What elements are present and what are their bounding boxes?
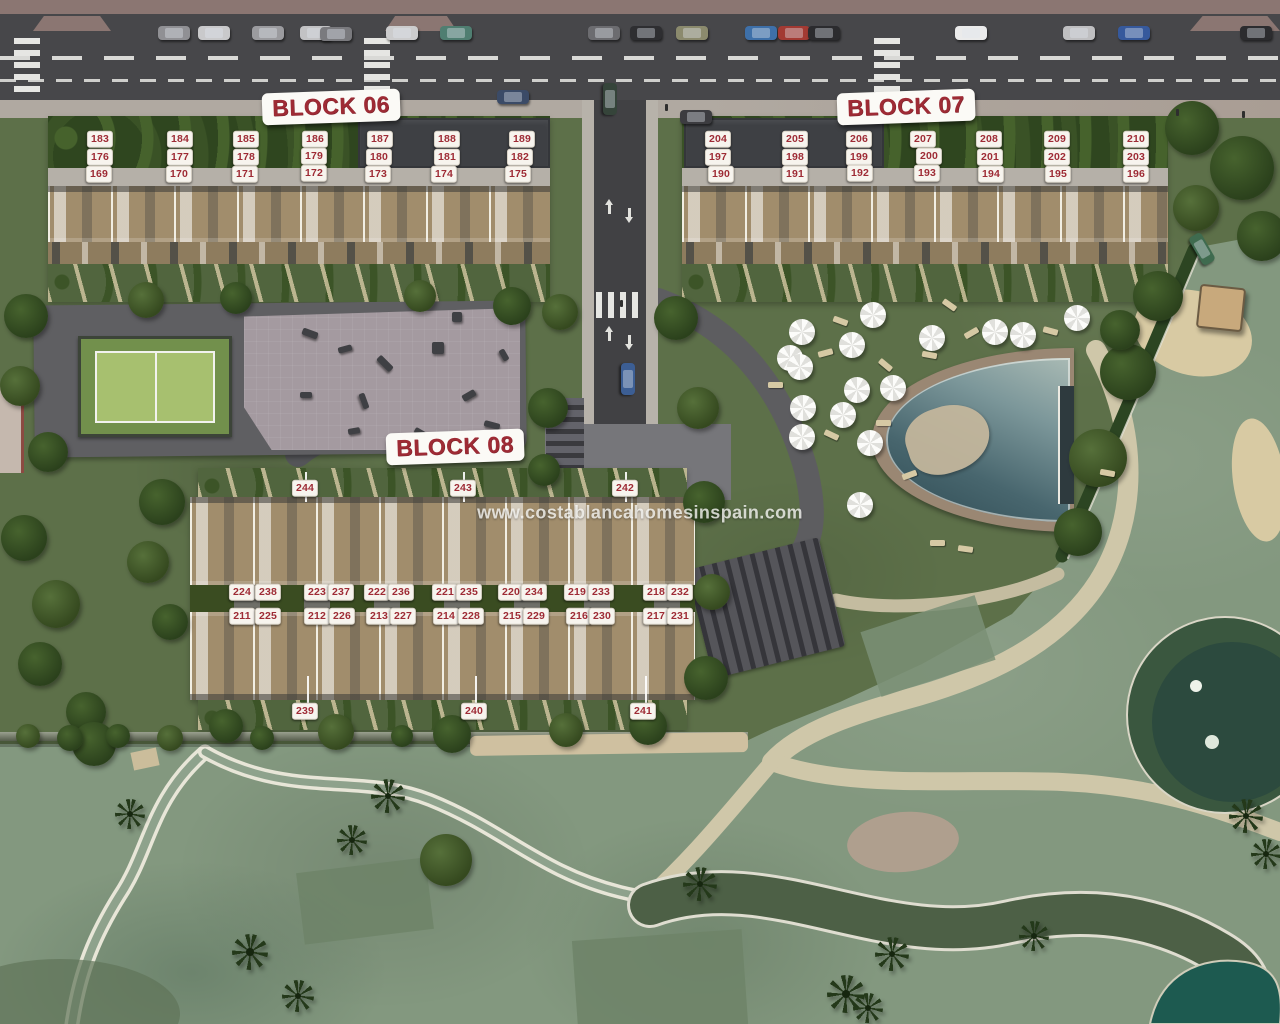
unit-chip-221: 221: [432, 584, 458, 601]
unit-chip-227: 227: [390, 608, 416, 625]
umbrella: [1010, 322, 1036, 348]
unit-chip-239: 239: [292, 703, 318, 720]
car: [440, 26, 472, 40]
unit-chip-228: 228: [458, 608, 484, 625]
car: [680, 110, 712, 124]
unit-chip-178: 178: [233, 149, 259, 166]
tree: [209, 709, 243, 743]
playground-equipment: [432, 342, 444, 354]
unit-chip-181: 181: [434, 149, 460, 166]
unit-chip-186: 186: [302, 131, 328, 148]
walkway: [48, 168, 550, 186]
tree: [18, 642, 62, 686]
tree: [1210, 136, 1274, 200]
unit-chip-182: 182: [507, 149, 533, 166]
pedestrian: [1242, 111, 1245, 118]
unit-chip-206: 206: [846, 131, 872, 148]
unit-chip-211: 211: [229, 608, 255, 625]
unit-chip-189: 189: [509, 131, 535, 148]
unit-chip-238: 238: [255, 584, 281, 601]
car: [621, 363, 635, 395]
tree: [318, 714, 354, 750]
apartments-row: [190, 612, 695, 700]
unit-chip-188: 188: [434, 131, 460, 148]
umbrella: [880, 375, 906, 401]
umbrella: [830, 402, 856, 428]
tree: [542, 294, 578, 330]
pedestrian: [620, 300, 623, 307]
tree: [16, 724, 40, 748]
tree: [1133, 271, 1183, 321]
playground: [244, 308, 520, 450]
watermark: www.costablancahomesinspain.com: [477, 503, 803, 524]
unit-chip-190: 190: [708, 166, 734, 183]
tree: [654, 296, 698, 340]
car: [588, 26, 620, 40]
tree: [250, 726, 274, 750]
car: [630, 26, 662, 40]
tree: [4, 294, 48, 338]
unit-chip-242: 242: [612, 480, 638, 497]
unit-chip-219: 219: [564, 584, 590, 601]
block-06-title: BLOCK 06: [262, 89, 401, 126]
unit-chip-235: 235: [456, 584, 482, 601]
car: [745, 26, 777, 40]
gazebo: [1196, 284, 1246, 333]
umbrella: [789, 424, 815, 450]
tree: [152, 604, 188, 640]
tree: [1165, 101, 1219, 155]
unit-chip-207: 207: [910, 131, 936, 148]
car: [386, 26, 418, 40]
car: [320, 27, 352, 41]
gardens-row: [682, 264, 1168, 302]
palm-tree: [371, 779, 405, 813]
crosswalk: [874, 38, 900, 96]
sun-lounger: [876, 420, 891, 426]
tree: [694, 574, 730, 610]
unit-chip-208: 208: [976, 131, 1002, 148]
playground-equipment: [452, 312, 462, 322]
unit-chip-218: 218: [643, 584, 669, 601]
unit-chip-203: 203: [1123, 149, 1149, 166]
car: [778, 26, 810, 40]
unit-chip-213: 213: [366, 608, 392, 625]
umbrella: [789, 319, 815, 345]
tree: [1, 515, 47, 561]
tree: [57, 725, 83, 751]
unit-chip-204: 204: [705, 131, 731, 148]
terraces-row: [682, 242, 1168, 264]
car: [603, 83, 617, 115]
unit-chip-237: 237: [328, 584, 354, 601]
unit-chip-185: 185: [233, 131, 259, 148]
umbrella: [857, 430, 883, 456]
tree: [128, 282, 164, 318]
palm-tree: [1019, 921, 1049, 951]
block-07-title: BLOCK 07: [837, 89, 976, 126]
palm-tree: [232, 934, 268, 970]
unit-chip-243: 243: [450, 480, 476, 497]
palm-tree: [683, 867, 717, 901]
unit-chip-200: 200: [916, 148, 942, 165]
unit-chip-222: 222: [364, 584, 390, 601]
tree: [1173, 185, 1219, 231]
unit-chip-215: 215: [499, 608, 525, 625]
car: [1063, 26, 1095, 40]
tree: [1237, 211, 1280, 261]
apartments-row: [682, 186, 1168, 242]
unit-chip-241: 241: [630, 703, 656, 720]
unit-chip-179: 179: [301, 148, 327, 165]
tree: [549, 713, 583, 747]
unit-chip-225: 225: [255, 608, 281, 625]
playground-equipment: [300, 392, 312, 398]
unit-chip-210: 210: [1123, 131, 1149, 148]
unit-chip-184: 184: [167, 131, 193, 148]
road-arrow-icon: [608, 332, 611, 341]
unit-chip-233: 233: [588, 584, 614, 601]
block-08-title: BLOCK 08: [386, 429, 525, 466]
leader-line: [475, 676, 477, 704]
tree: [157, 725, 183, 751]
palm-tree: [1229, 799, 1263, 833]
unit-chip-174: 174: [431, 166, 457, 183]
lane-line: [0, 56, 1280, 60]
umbrella: [919, 325, 945, 351]
unit-chip-193: 193: [914, 165, 940, 182]
umbrella: [982, 319, 1008, 345]
palm-tree: [875, 937, 909, 971]
unit-chip-201: 201: [977, 149, 1003, 166]
palm-tree: [853, 993, 883, 1023]
tree: [1069, 429, 1127, 487]
unit-chip-169: 169: [86, 166, 112, 183]
crosswalk: [14, 38, 40, 96]
unit-chip-223: 223: [304, 584, 330, 601]
unit-chip-176: 176: [87, 149, 113, 166]
unit-chip-196: 196: [1123, 166, 1149, 183]
unit-chip-232: 232: [667, 584, 693, 601]
unit-chip-240: 240: [461, 703, 487, 720]
tree: [433, 715, 471, 753]
car: [676, 26, 708, 40]
palm-tree: [337, 825, 367, 855]
unit-chip-173: 173: [365, 166, 391, 183]
unit-chip-198: 198: [782, 149, 808, 166]
tree: [1054, 508, 1102, 556]
unit-chip-234: 234: [521, 584, 547, 601]
umbrella: [844, 377, 870, 403]
tree: [139, 479, 185, 525]
curb-bumpout: [33, 16, 111, 31]
crosswalk: [364, 38, 390, 96]
palm-tree: [1251, 839, 1280, 869]
tree: [220, 282, 252, 314]
unit-chip-194: 194: [978, 166, 1004, 183]
unit-chip-197: 197: [705, 149, 731, 166]
unit-chip-180: 180: [366, 149, 392, 166]
tree: [684, 656, 728, 700]
unit-chip-195: 195: [1045, 166, 1071, 183]
padel-court-surface: [95, 351, 215, 423]
tree: [528, 454, 560, 486]
unit-chip-244: 244: [292, 480, 318, 497]
unit-chip-192: 192: [847, 165, 873, 182]
unit-chip-226: 226: [329, 608, 355, 625]
car: [158, 26, 190, 40]
unit-chip-214: 214: [433, 608, 459, 625]
gardens-row: [48, 264, 550, 302]
umbrella: [787, 354, 813, 380]
unit-chip-187: 187: [367, 131, 393, 148]
unit-chip-175: 175: [505, 166, 531, 183]
road-arrow-icon: [608, 205, 611, 214]
tree: [404, 280, 436, 312]
leader-line: [307, 676, 309, 704]
unit-chip-199: 199: [846, 149, 872, 166]
tree: [1100, 344, 1156, 400]
car: [808, 26, 840, 40]
pedestrian: [1176, 109, 1179, 116]
unit-chip-212: 212: [304, 608, 330, 625]
umbrella: [847, 492, 873, 518]
terraces-row: [48, 242, 550, 264]
tree: [677, 387, 719, 429]
palm-tree: [282, 980, 314, 1012]
unit-chip-170: 170: [166, 166, 192, 183]
tree: [528, 388, 568, 428]
site-plan-image: 1831841851861871881891761771781791801811…: [0, 0, 1280, 1024]
tree: [106, 724, 130, 748]
unit-chip-231: 231: [667, 608, 693, 625]
road-arrow-icon: [628, 335, 631, 344]
unit-chip-230: 230: [589, 608, 615, 625]
tree: [32, 580, 80, 628]
car: [1240, 26, 1272, 40]
car: [955, 26, 987, 40]
umbrella: [790, 395, 816, 421]
tree: [0, 366, 40, 406]
tree: [1100, 310, 1140, 350]
pedestrian: [665, 104, 668, 111]
umbrella: [1064, 305, 1090, 331]
unit-chip-183: 183: [87, 131, 113, 148]
unit-chip-171: 171: [232, 166, 258, 183]
tree: [28, 432, 68, 472]
unit-chip-205: 205: [782, 131, 808, 148]
padel-court: [78, 336, 232, 437]
car: [497, 90, 529, 104]
sun-lounger: [930, 540, 945, 546]
unit-chip-177: 177: [167, 149, 193, 166]
sun-lounger: [768, 382, 783, 388]
tree: [391, 725, 413, 747]
unit-chip-236: 236: [388, 584, 414, 601]
tree: [493, 287, 531, 325]
unit-chip-202: 202: [1044, 149, 1070, 166]
tree: [420, 834, 472, 886]
unit-chip-209: 209: [1044, 131, 1070, 148]
umbrella: [839, 332, 865, 358]
car: [198, 26, 230, 40]
umbrella: [860, 302, 886, 328]
apartments-row: [48, 186, 550, 242]
unit-chip-229: 229: [523, 608, 549, 625]
sand-strip: [470, 732, 748, 756]
leader-line: [645, 676, 647, 704]
car: [1118, 26, 1150, 40]
unit-chip-224: 224: [229, 584, 255, 601]
unit-chip-172: 172: [301, 165, 327, 182]
unit-chip-217: 217: [643, 608, 669, 625]
tree: [127, 541, 169, 583]
block-06-building: [48, 116, 550, 302]
palm-tree: [115, 799, 145, 829]
car: [252, 26, 284, 40]
unit-chip-191: 191: [782, 166, 808, 183]
lane-line: [0, 79, 1280, 82]
road-arrow-icon: [628, 208, 631, 217]
